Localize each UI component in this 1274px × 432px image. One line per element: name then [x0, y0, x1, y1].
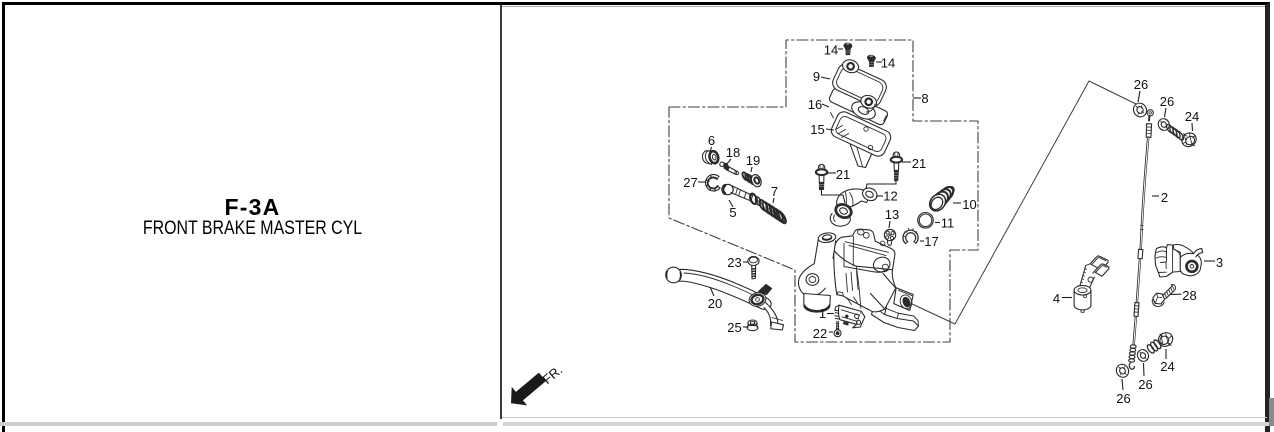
svg-text:24: 24: [1185, 109, 1199, 124]
svg-text:28: 28: [1182, 288, 1196, 303]
svg-text:9: 9: [813, 69, 820, 84]
svg-text:16: 16: [808, 97, 822, 112]
svg-text:3: 3: [1216, 255, 1223, 270]
svg-text:24: 24: [1160, 359, 1174, 374]
svg-text:14: 14: [881, 56, 895, 71]
svg-text:4: 4: [1053, 291, 1060, 306]
svg-text:26: 26: [1138, 377, 1152, 392]
svg-text:27: 27: [683, 175, 697, 190]
svg-text:14: 14: [824, 43, 838, 58]
svg-text:21: 21: [912, 156, 926, 171]
svg-text:1: 1: [819, 306, 826, 321]
svg-text:FR.: FR.: [540, 362, 566, 387]
svg-text:22: 22: [813, 326, 827, 341]
svg-text:5: 5: [729, 205, 736, 220]
svg-text:8: 8: [921, 91, 928, 106]
svg-text:23: 23: [727, 255, 741, 270]
svg-text:20: 20: [708, 296, 722, 311]
svg-text:13: 13: [885, 207, 899, 222]
svg-text:19: 19: [746, 153, 760, 168]
svg-text:18: 18: [726, 145, 740, 160]
svg-text:10: 10: [962, 197, 976, 212]
svg-text:21: 21: [836, 167, 850, 182]
svg-text:2: 2: [1161, 190, 1168, 205]
svg-text:11: 11: [941, 216, 955, 231]
svg-text:26: 26: [1116, 391, 1130, 406]
svg-text:6: 6: [708, 133, 715, 148]
svg-text:25: 25: [727, 320, 741, 335]
svg-text:17: 17: [924, 234, 938, 249]
svg-text:15: 15: [810, 122, 824, 137]
svg-text:7: 7: [771, 184, 778, 199]
svg-text:12: 12: [883, 189, 897, 204]
svg-text:26: 26: [1134, 77, 1148, 92]
svg-text:26: 26: [1160, 94, 1174, 109]
